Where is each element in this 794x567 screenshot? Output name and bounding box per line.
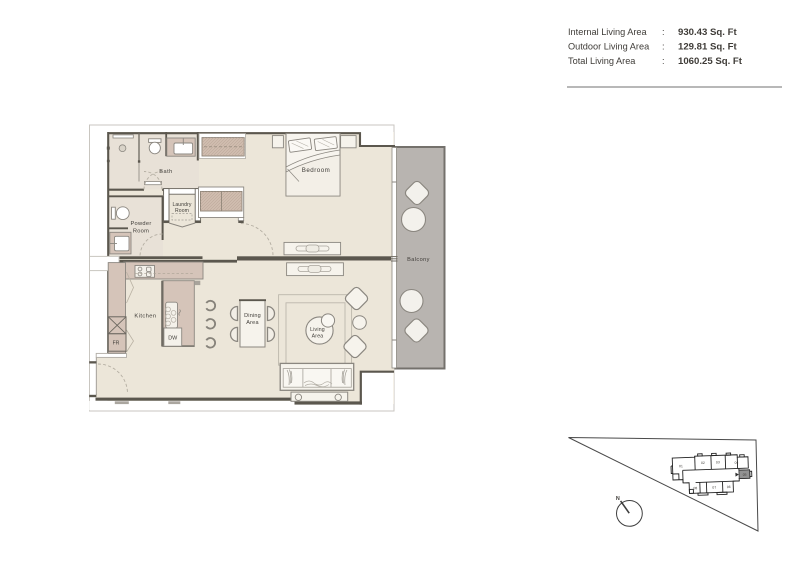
svg-text:Total Living Area: Total Living Area	[568, 56, 636, 66]
svg-text:03: 03	[716, 460, 720, 464]
svg-text:02: 02	[701, 461, 705, 465]
svg-text:DW: DW	[168, 336, 178, 342]
svg-text:Outdoor Living Area: Outdoor Living Area	[568, 42, 650, 52]
svg-text:Internal Living Area: Internal Living Area	[568, 27, 648, 37]
svg-text:N: N	[616, 496, 620, 502]
svg-text:Dining: Dining	[244, 313, 261, 319]
svg-text:05: 05	[743, 473, 747, 477]
svg-text::: :	[662, 27, 665, 37]
svg-text:FR: FR	[113, 341, 120, 347]
svg-text:Area: Area	[246, 320, 259, 326]
svg-text:Living: Living	[310, 327, 325, 333]
svg-text:08: 08	[693, 486, 697, 490]
svg-text:06: 06	[727, 485, 731, 489]
svg-text:Bath: Bath	[159, 169, 173, 175]
svg-text:Room: Room	[175, 208, 189, 214]
svg-text::: :	[662, 56, 665, 66]
svg-text:Room: Room	[133, 228, 149, 234]
svg-text:Balcony: Balcony	[407, 257, 430, 263]
svg-text:01: 01	[679, 464, 683, 468]
svg-text:Bedroom: Bedroom	[302, 167, 331, 174]
svg-text::: :	[662, 42, 665, 52]
svg-text:Area: Area	[312, 334, 324, 340]
svg-text:930.43 Sq. Ft: 930.43 Sq. Ft	[678, 27, 737, 38]
svg-text:Kitchen: Kitchen	[134, 313, 156, 319]
svg-text:129.81 Sq. Ft: 129.81 Sq. Ft	[678, 42, 737, 53]
svg-text:04: 04	[734, 461, 738, 465]
svg-text:1060.25 Sq. Ft: 1060.25 Sq. Ft	[678, 56, 743, 67]
svg-text:Powder: Powder	[130, 221, 151, 227]
svg-text:07: 07	[712, 485, 716, 489]
